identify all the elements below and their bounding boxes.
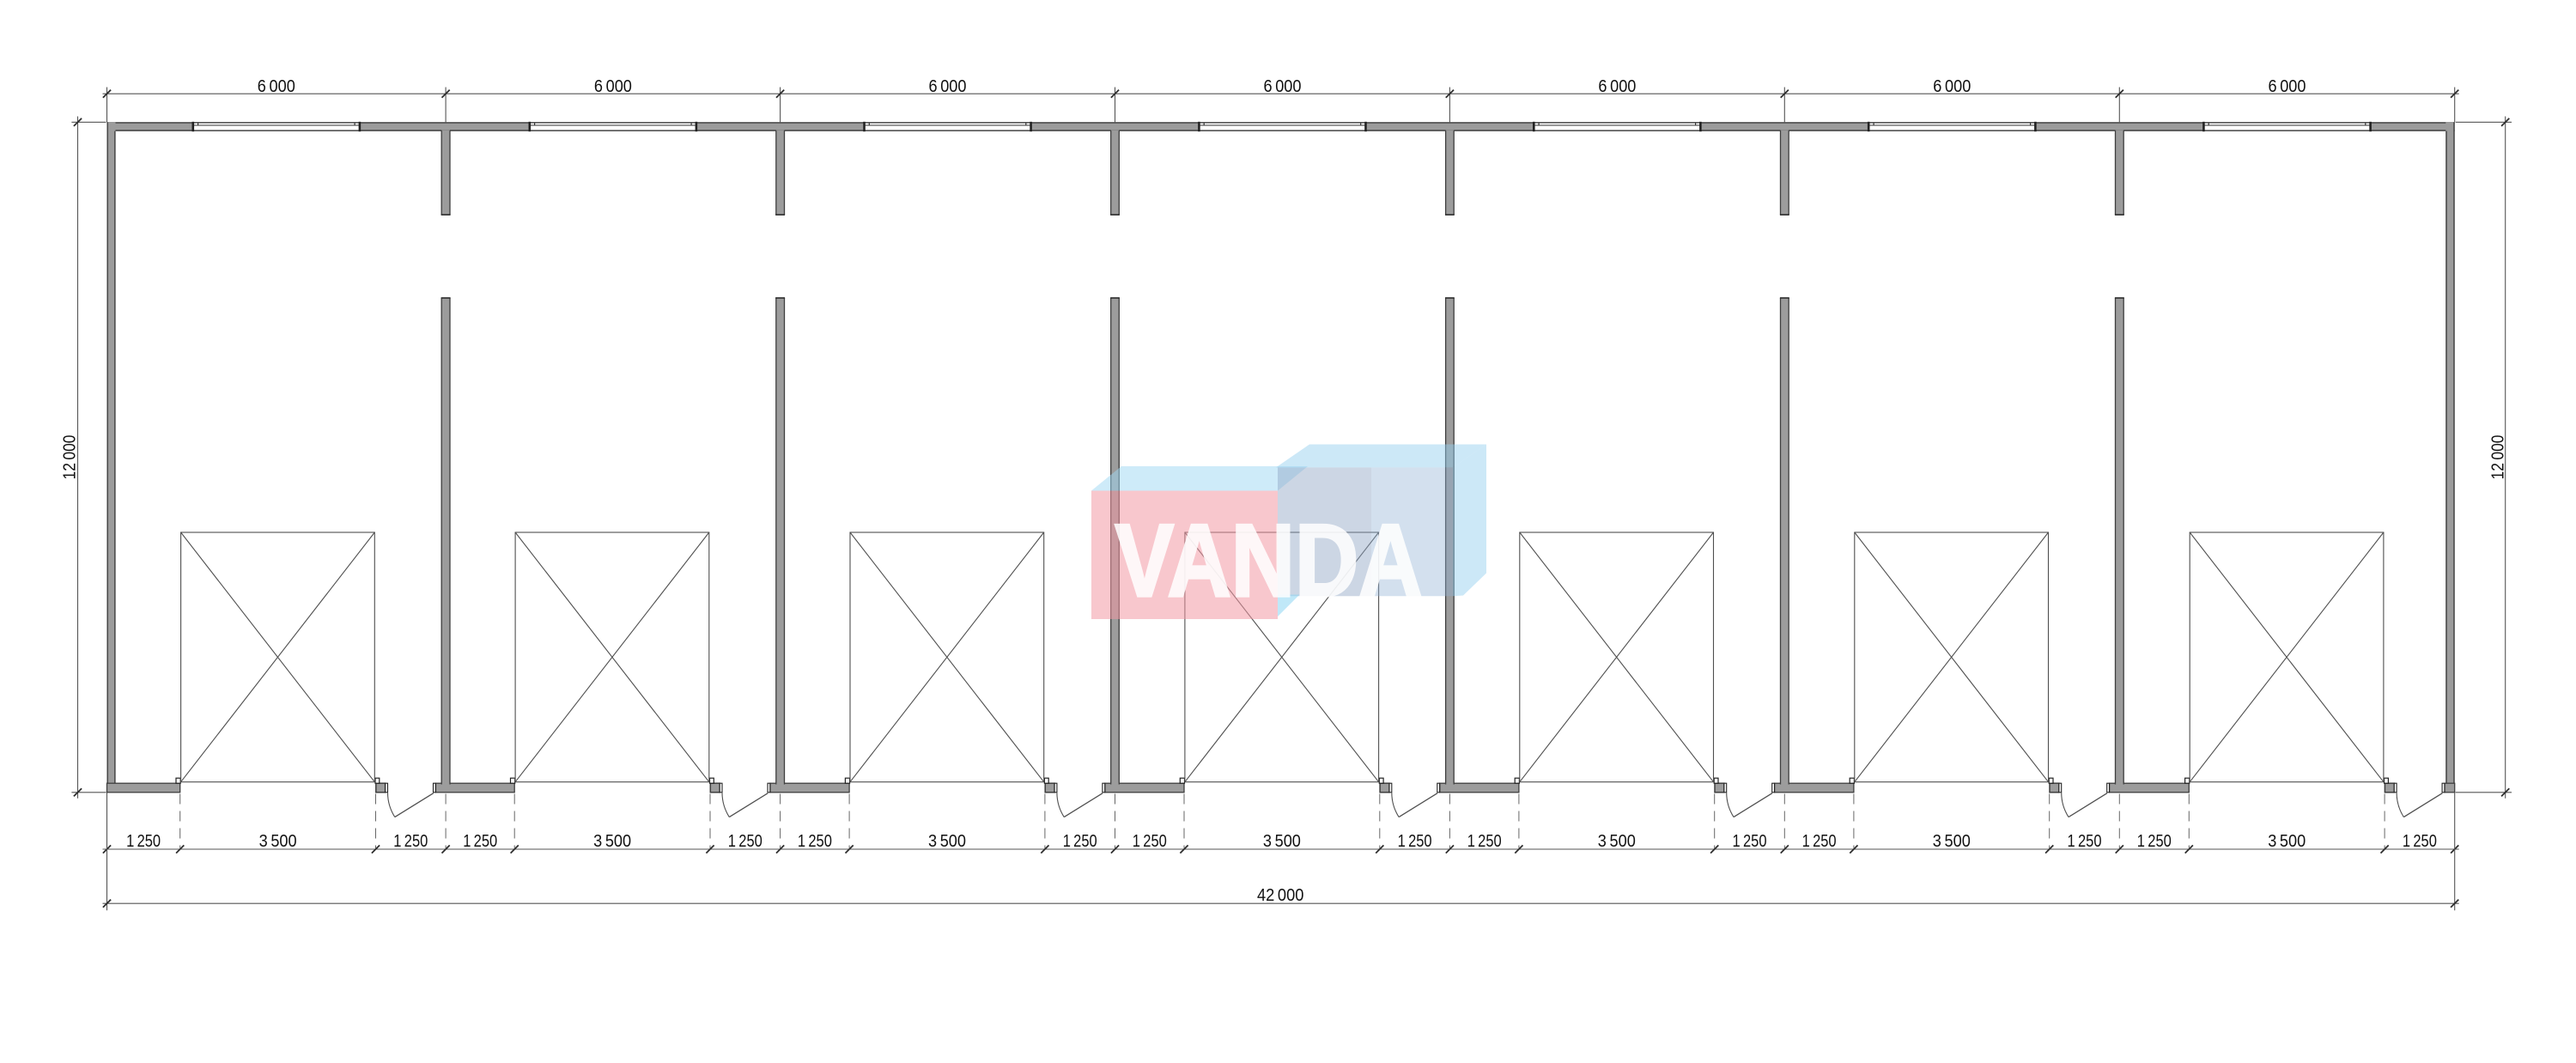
svg-text:1 250: 1 250 [463,831,497,851]
svg-text:1 250: 1 250 [728,831,762,851]
svg-text:6 000: 6 000 [1598,76,1636,96]
svg-text:6 000: 6 000 [2269,76,2306,96]
svg-text:1 250: 1 250 [2403,831,2437,851]
svg-text:1 250: 1 250 [126,831,161,851]
svg-text:3 500: 3 500 [593,831,631,851]
svg-text:12 000: 12 000 [2488,435,2508,480]
svg-text:3 500: 3 500 [2268,831,2306,851]
svg-text:3 500: 3 500 [259,831,297,851]
svg-text:6 000: 6 000 [1264,76,1302,96]
svg-text:1 250: 1 250 [1467,831,1502,851]
svg-text:6 000: 6 000 [1933,76,1971,96]
svg-text:3 500: 3 500 [1598,831,1636,851]
svg-text:1 250: 1 250 [2137,831,2172,851]
svg-text:12 000: 12 000 [60,435,80,480]
svg-text:3 500: 3 500 [1263,831,1301,851]
svg-text:1 250: 1 250 [2068,831,2102,851]
svg-text:1 250: 1 250 [1063,831,1097,851]
svg-text:6 000: 6 000 [258,76,295,96]
svg-text:1 250: 1 250 [1802,831,1837,851]
svg-text:3 500: 3 500 [1933,831,1971,851]
svg-text:6 000: 6 000 [929,76,967,96]
svg-text:1 250: 1 250 [798,831,832,851]
svg-text:6 000: 6 000 [594,76,632,96]
svg-text:3 500: 3 500 [928,831,966,851]
svg-text:1 250: 1 250 [1733,831,1767,851]
svg-text:VANDA: VANDA [1115,503,1423,618]
svg-text:42 000: 42 000 [1257,885,1304,905]
svg-text:1 250: 1 250 [393,831,428,851]
svg-text:1 250: 1 250 [1133,831,1167,851]
svg-text:1 250: 1 250 [1398,831,1432,851]
